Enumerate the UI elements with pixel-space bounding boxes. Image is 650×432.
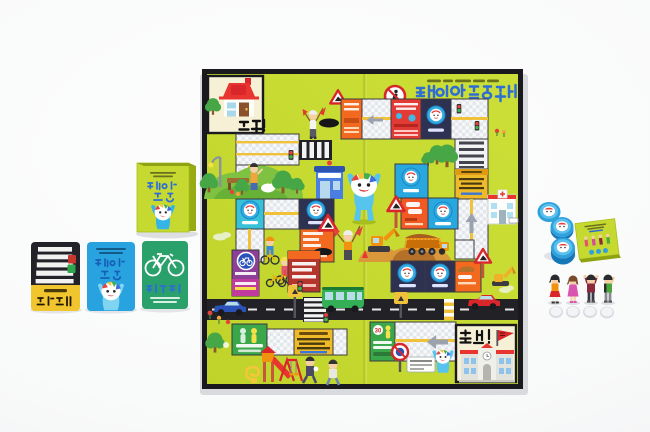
svg-text:30: 30 (375, 329, 382, 335)
